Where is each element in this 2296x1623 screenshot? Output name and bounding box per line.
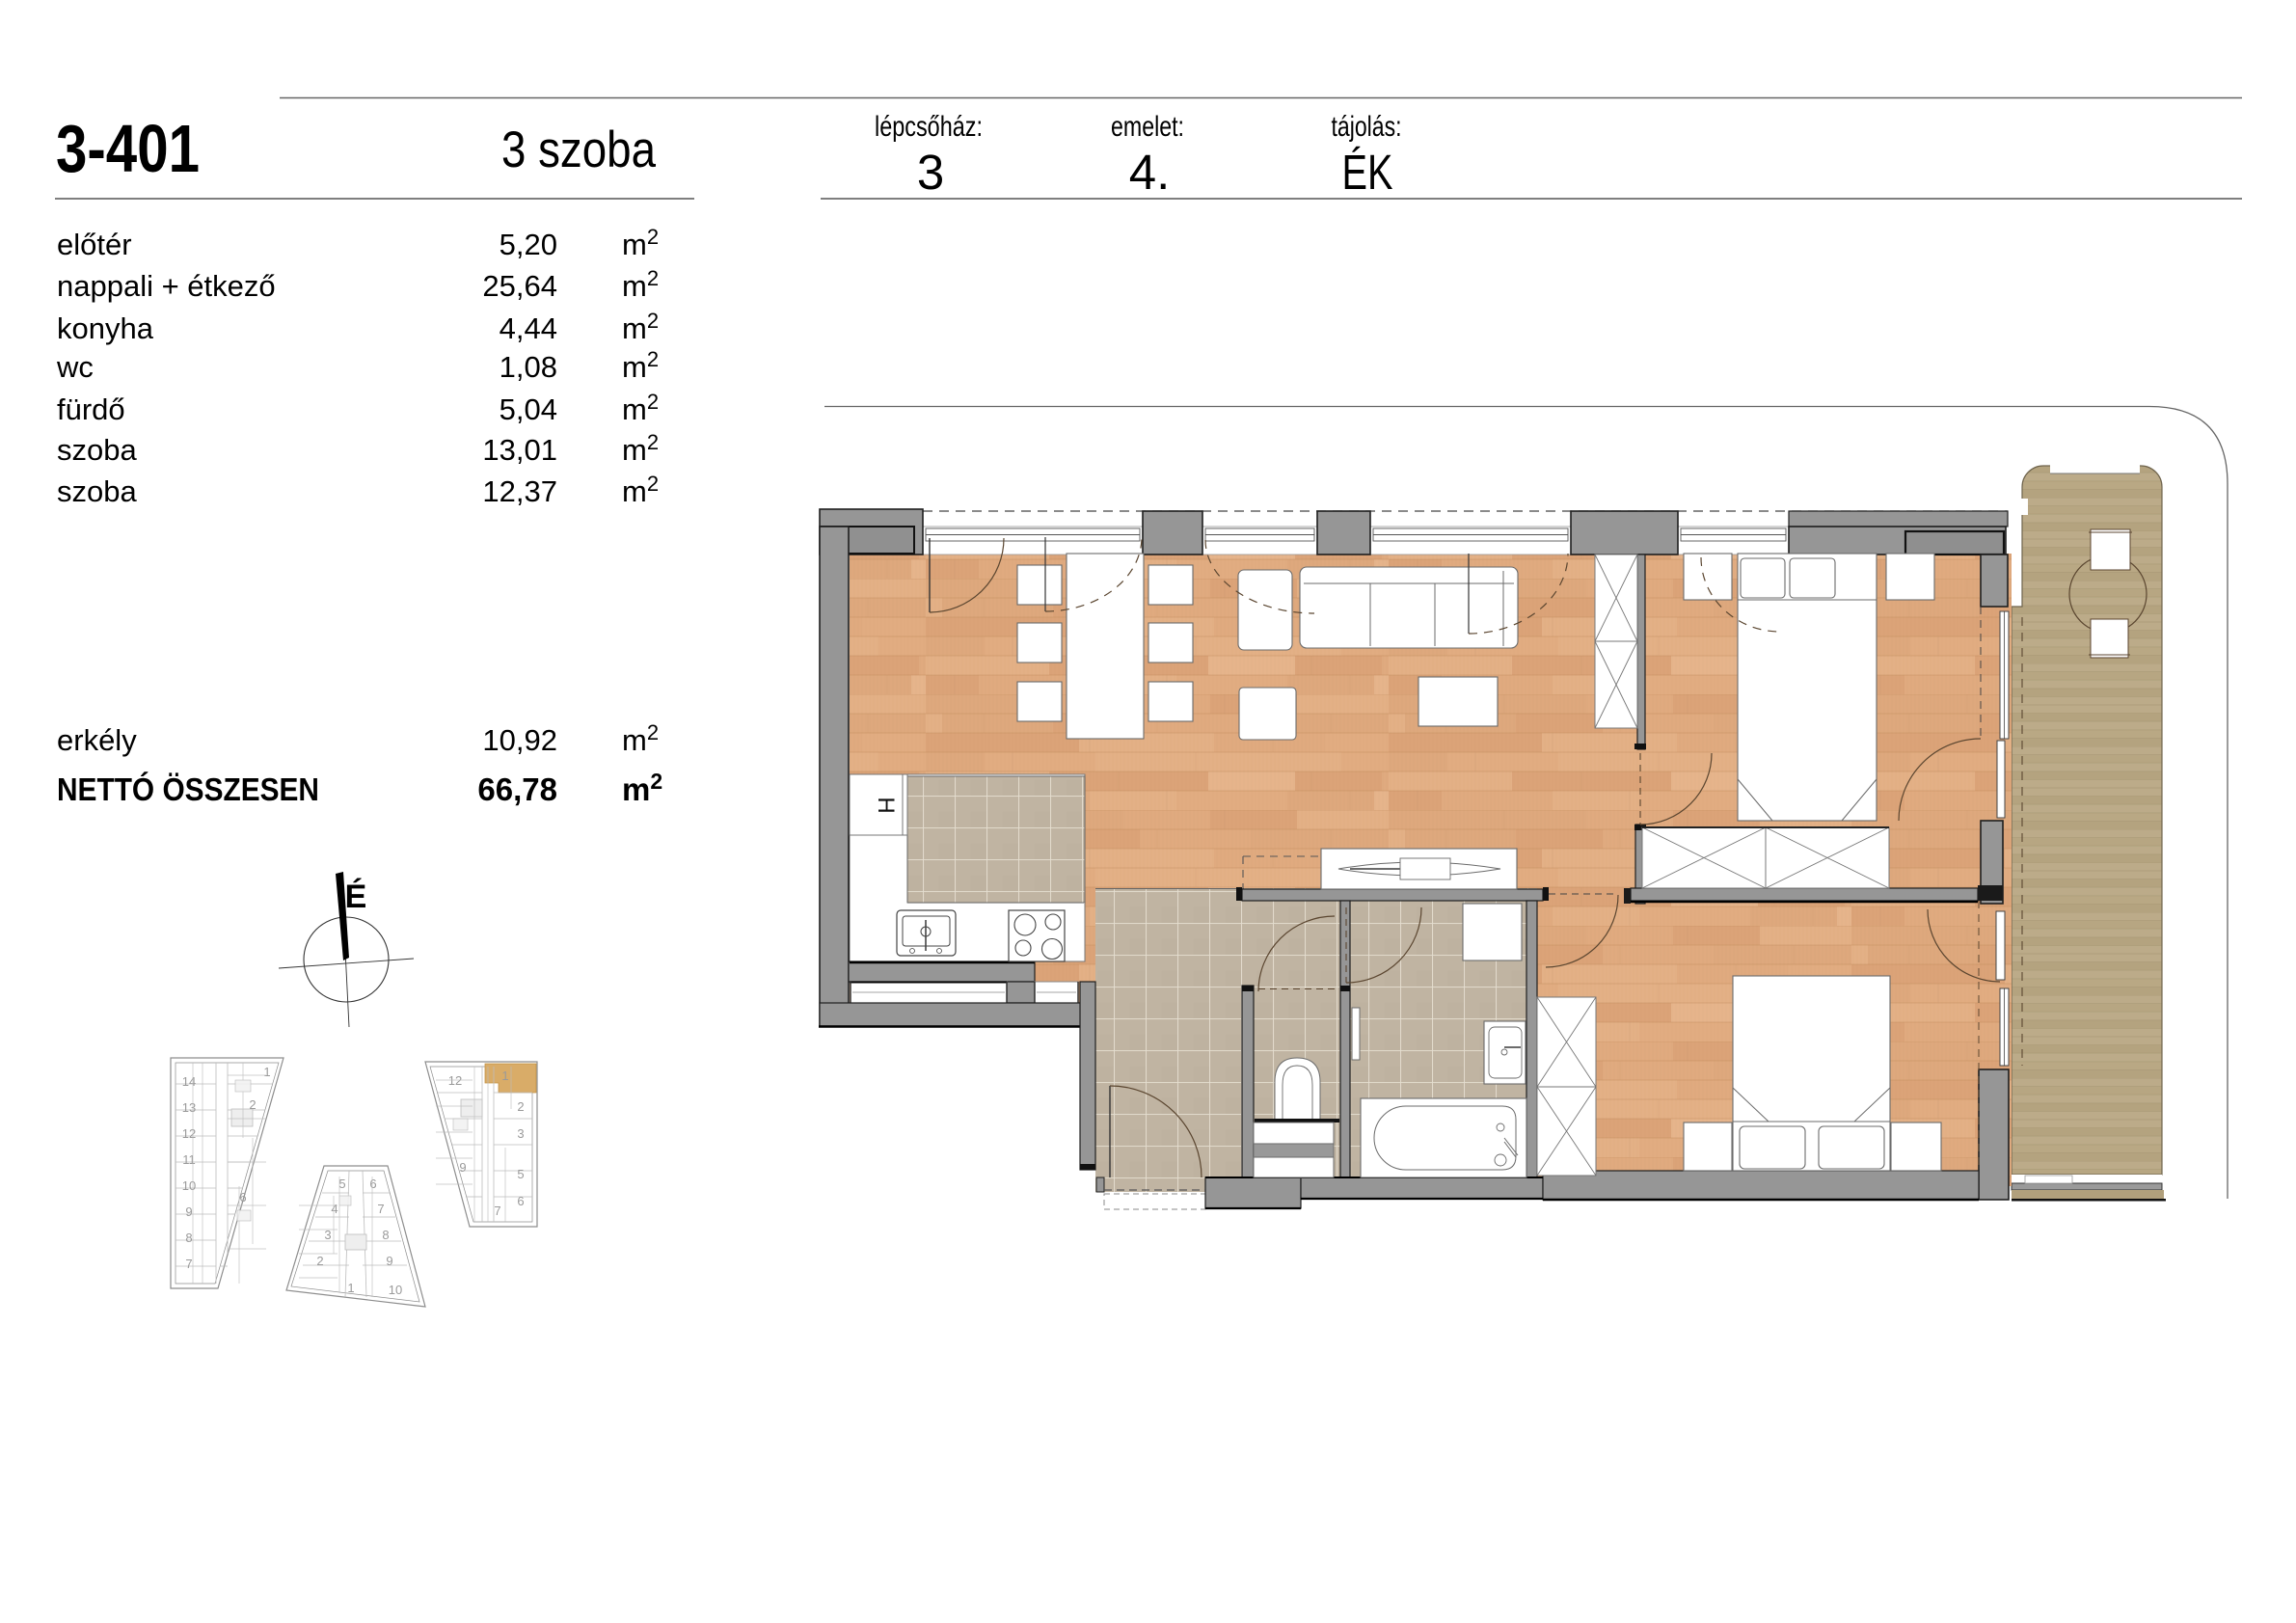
svg-text:m2: m2	[622, 266, 659, 303]
svg-text:m2: m2	[622, 225, 659, 261]
svg-text:szoba: szoba	[57, 474, 137, 508]
svg-text:9: 9	[386, 1254, 392, 1268]
svg-text:7: 7	[377, 1202, 384, 1216]
svg-text:25,64: 25,64	[482, 269, 557, 303]
svg-text:3-401: 3-401	[56, 111, 200, 186]
svg-text:É: É	[345, 879, 367, 915]
svg-text:9: 9	[185, 1204, 192, 1219]
svg-text:10: 10	[389, 1283, 402, 1297]
svg-text:m2: m2	[622, 769, 662, 807]
svg-text:m2: m2	[622, 430, 659, 467]
svg-text:6: 6	[369, 1177, 376, 1191]
svg-text:11: 11	[182, 1152, 196, 1167]
svg-text:12: 12	[448, 1073, 462, 1088]
svg-text:4,44: 4,44	[500, 311, 557, 345]
svg-text:12,37: 12,37	[482, 474, 557, 508]
svg-text:1: 1	[347, 1281, 354, 1295]
svg-text:8: 8	[185, 1231, 192, 1245]
svg-text:m2: m2	[622, 720, 659, 757]
svg-text:8: 8	[382, 1228, 389, 1242]
svg-text:7: 7	[185, 1257, 192, 1271]
svg-text:66,78: 66,78	[477, 771, 557, 807]
svg-text:wc: wc	[56, 350, 94, 384]
svg-text:nappali + étkező: nappali + étkező	[57, 269, 276, 303]
svg-text:13: 13	[182, 1100, 196, 1115]
svg-text:2: 2	[249, 1097, 256, 1112]
svg-text:6: 6	[239, 1190, 246, 1204]
svg-text:lépcsőház:: lépcsőház:	[875, 111, 983, 143]
svg-text:m2: m2	[622, 390, 659, 426]
svg-text:1: 1	[501, 1068, 508, 1083]
svg-text:erkély: erkély	[57, 723, 137, 757]
svg-text:4: 4	[331, 1202, 338, 1216]
svg-text:4.: 4.	[1129, 145, 1171, 200]
svg-text:konyha: konyha	[57, 311, 154, 345]
svg-text:2: 2	[316, 1254, 323, 1268]
svg-text:1,08: 1,08	[500, 350, 557, 384]
svg-text:NETTÓ ÖSSZESEN: NETTÓ ÖSSZESEN	[57, 771, 319, 807]
svg-text:tájolás:: tájolás:	[1332, 111, 1402, 143]
svg-text:5: 5	[338, 1177, 345, 1191]
svg-text:2: 2	[517, 1099, 524, 1114]
svg-text:fürdő: fürdő	[57, 392, 125, 426]
svg-text:14: 14	[182, 1074, 196, 1089]
svg-text:szoba: szoba	[57, 433, 137, 467]
svg-text:m2: m2	[622, 472, 659, 508]
svg-text:5,20: 5,20	[500, 228, 557, 261]
svg-text:ÉK: ÉK	[1342, 145, 1393, 200]
svg-text:6: 6	[517, 1194, 524, 1208]
svg-text:10,92: 10,92	[482, 723, 557, 757]
svg-text:előtér: előtér	[57, 228, 132, 261]
svg-text:10: 10	[182, 1178, 196, 1193]
svg-text:13,01: 13,01	[482, 433, 557, 467]
svg-text:emelet:: emelet:	[1111, 111, 1184, 143]
svg-text:m2: m2	[622, 347, 659, 384]
svg-text:1: 1	[263, 1065, 270, 1079]
svg-text:3 szoba: 3 szoba	[501, 122, 656, 178]
svg-text:9: 9	[459, 1160, 466, 1175]
svg-text:12: 12	[182, 1126, 196, 1141]
svg-text:m2: m2	[622, 309, 659, 345]
svg-text:5: 5	[517, 1167, 524, 1181]
svg-text:H: H	[873, 797, 899, 813]
svg-text:3: 3	[517, 1126, 524, 1141]
svg-text:5,04: 5,04	[500, 392, 557, 426]
svg-text:7: 7	[494, 1204, 500, 1218]
svg-text:3: 3	[917, 145, 944, 200]
